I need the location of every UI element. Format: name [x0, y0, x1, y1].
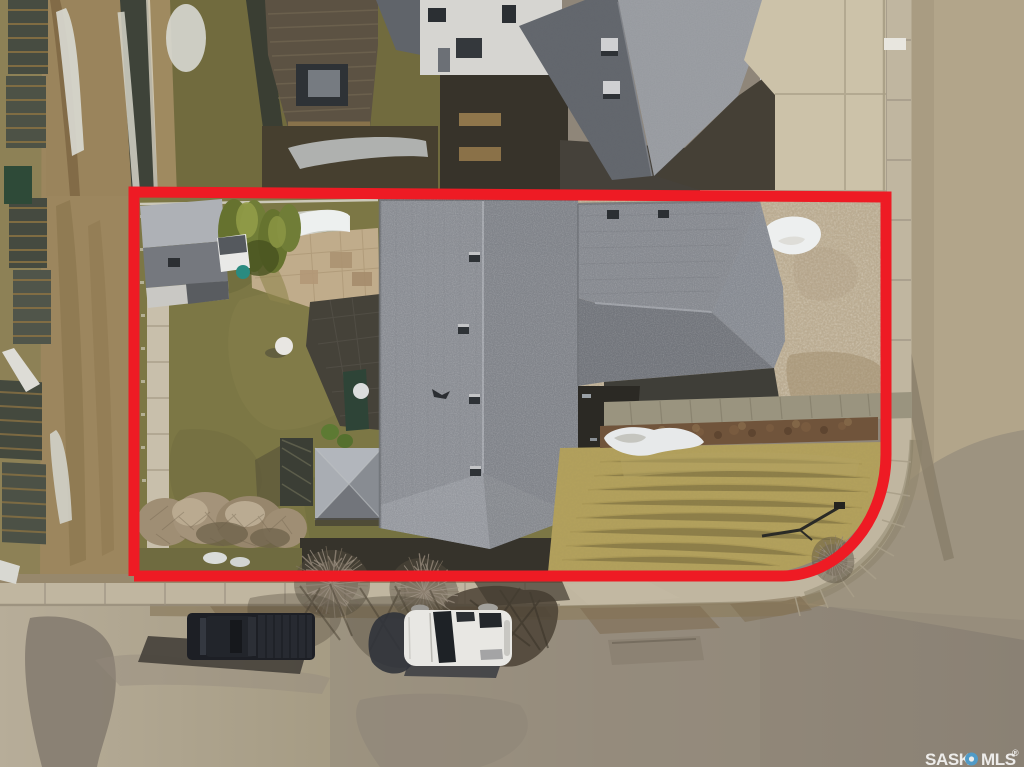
svg-text:SASK: SASK	[925, 750, 972, 767]
svg-text:MLS: MLS	[981, 750, 1016, 767]
svg-text:®: ®	[1012, 748, 1019, 758]
